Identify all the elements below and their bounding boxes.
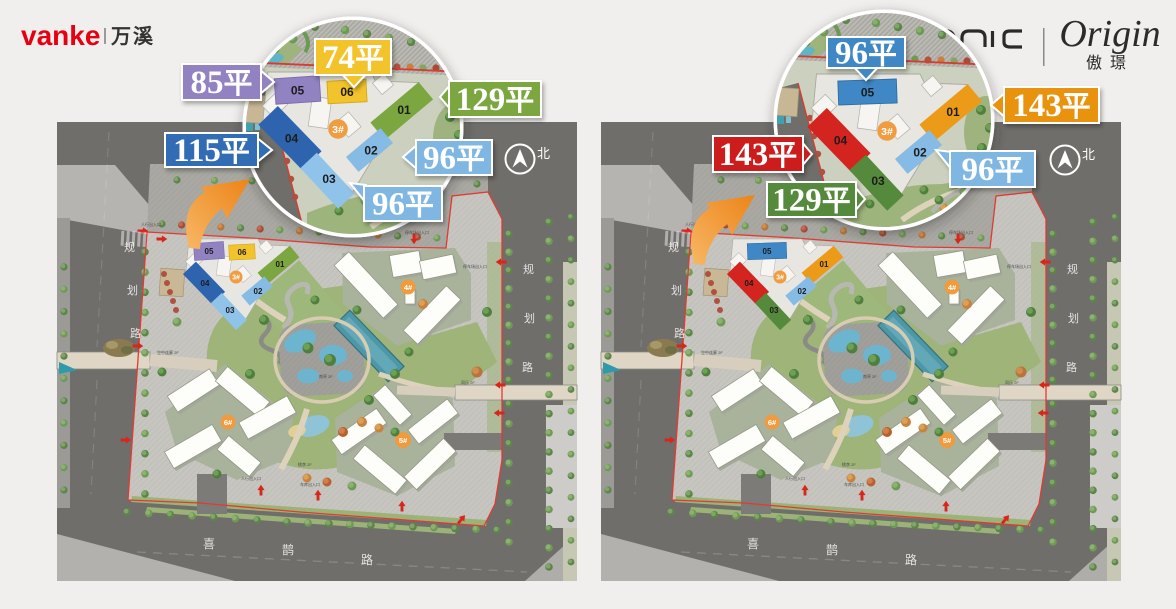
svg-text:129平: 129平 — [772, 183, 851, 219]
svg-text:人行出入口: 人行出入口 — [241, 475, 261, 481]
svg-text:划: 划 — [127, 284, 138, 297]
svg-text:空中连廊 2F: 空中连廊 2F — [157, 349, 179, 355]
svg-text:5#: 5# — [943, 436, 952, 445]
svg-text:傲璟: 傲璟 — [1086, 54, 1134, 72]
svg-text:路: 路 — [674, 327, 685, 340]
svg-text:vanke: vanke — [21, 20, 100, 51]
svg-text:规: 规 — [1067, 262, 1078, 276]
svg-text:桃李 2F: 桃李 2F — [842, 461, 856, 467]
svg-text:停车场出入口: 停车场出入口 — [463, 263, 487, 269]
svg-text:同乐 2F: 同乐 2F — [461, 379, 475, 385]
svg-text:143平: 143平 — [1012, 88, 1091, 124]
svg-text:96平: 96平 — [423, 141, 485, 177]
svg-text:北: 北 — [537, 146, 550, 161]
svg-text:空中连廊 2F: 空中连廊 2F — [701, 349, 723, 355]
svg-text:路: 路 — [1066, 361, 1077, 374]
svg-text:115平: 115平 — [173, 133, 250, 169]
svg-text:车库出入口: 车库出入口 — [844, 481, 864, 487]
svg-text:6#: 6# — [224, 418, 233, 427]
svg-text:鹊: 鹊 — [826, 543, 838, 557]
svg-text:6#: 6# — [768, 418, 777, 427]
svg-text:北: 北 — [1082, 147, 1095, 162]
svg-text:143平: 143平 — [719, 137, 798, 173]
svg-text:南亭 2F: 南亭 2F — [319, 373, 333, 379]
svg-text:85平: 85平 — [190, 65, 252, 101]
svg-text:路: 路 — [130, 327, 141, 340]
svg-text:车库出入口: 车库出入口 — [300, 481, 320, 487]
svg-text:停车场出入口: 停车场出入口 — [949, 229, 973, 235]
svg-text:停车场出入口: 停车场出入口 — [405, 229, 429, 235]
svg-text:规: 规 — [523, 262, 534, 276]
svg-text:4#: 4# — [404, 283, 413, 292]
svg-text:路: 路 — [905, 552, 917, 567]
svg-text:74平: 74平 — [322, 40, 384, 76]
svg-text:南亭 2F: 南亭 2F — [863, 373, 877, 379]
svg-text:96平: 96平 — [961, 152, 1023, 188]
svg-text:鹊: 鹊 — [282, 543, 294, 557]
svg-text:划: 划 — [671, 284, 682, 297]
svg-text:万溪: 万溪 — [110, 24, 155, 48]
svg-text:人行出入口: 人行出入口 — [785, 475, 805, 481]
svg-text:路: 路 — [522, 361, 533, 374]
svg-text:96平: 96平 — [372, 187, 434, 223]
svg-text:路: 路 — [361, 552, 373, 567]
svg-text:喜: 喜 — [203, 537, 215, 551]
svg-text:划: 划 — [1068, 312, 1079, 325]
svg-text:停车场出入口: 停车场出入口 — [1007, 263, 1031, 269]
svg-text:4#: 4# — [948, 283, 957, 292]
svg-text:5#: 5# — [399, 436, 408, 445]
svg-text:划: 划 — [524, 312, 535, 325]
svg-text:同乐 2F: 同乐 2F — [1005, 379, 1019, 385]
svg-text:桃李 2F: 桃李 2F — [298, 461, 312, 467]
svg-text:Origin: Origin — [1059, 13, 1160, 55]
svg-text:人行出入口: 人行出入口 — [141, 221, 161, 227]
svg-text:96平: 96平 — [835, 36, 897, 72]
svg-text:喜: 喜 — [747, 537, 759, 551]
svg-text:129平: 129平 — [456, 82, 535, 118]
